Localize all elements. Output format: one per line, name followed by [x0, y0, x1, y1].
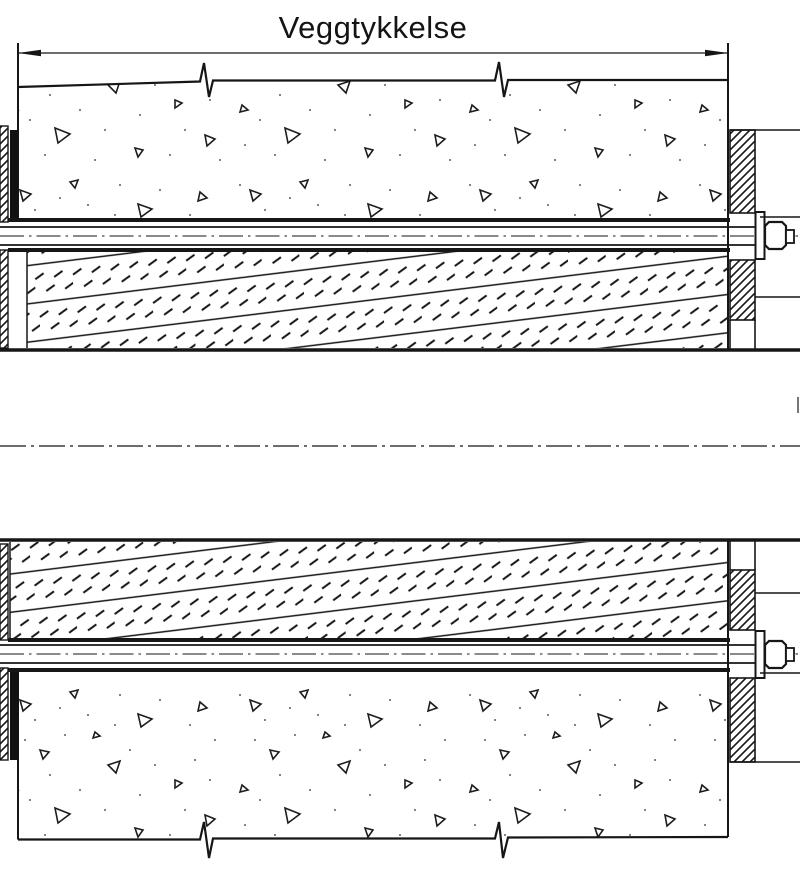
sealant-bar-lower — [10, 672, 19, 760]
right-flange-lower-b — [730, 678, 755, 762]
concrete-lower — [18, 672, 728, 858]
nut-upper — [765, 222, 786, 249]
left-flange-upper-b — [0, 250, 8, 348]
dimension-arrow-left — [18, 50, 41, 57]
dimension-veggtykkelse: Veggtykkelse — [18, 10, 728, 56]
right-flange-upper-a — [730, 130, 755, 213]
dimension-label: Veggtykkelse — [279, 10, 468, 45]
right-flange-lower-a — [730, 570, 755, 630]
washer-lower — [756, 631, 765, 678]
upper-wall-section — [0, 43, 800, 350]
drawing-svg: Veggtykkelse — [0, 0, 800, 880]
right-flange-upper-b — [730, 260, 755, 320]
insulation-lower — [10, 542, 728, 638]
dimension-arrow-right — [705, 50, 728, 57]
left-flange-lower-a — [0, 544, 8, 640]
insulation-upper — [27, 252, 728, 348]
left-flange-upper-a — [0, 126, 8, 222]
washer-upper — [756, 212, 765, 259]
lower-wall-section — [0, 540, 800, 858]
rod-end-upper — [786, 230, 794, 243]
rod-end-lower — [786, 648, 794, 661]
sealant-bar-upper — [10, 130, 18, 218]
left-flange-lower-b — [0, 668, 8, 760]
technical-drawing-canvas: Veggtykkelse — [0, 0, 800, 880]
nut-lower — [765, 641, 786, 668]
concrete-upper — [18, 62, 728, 218]
